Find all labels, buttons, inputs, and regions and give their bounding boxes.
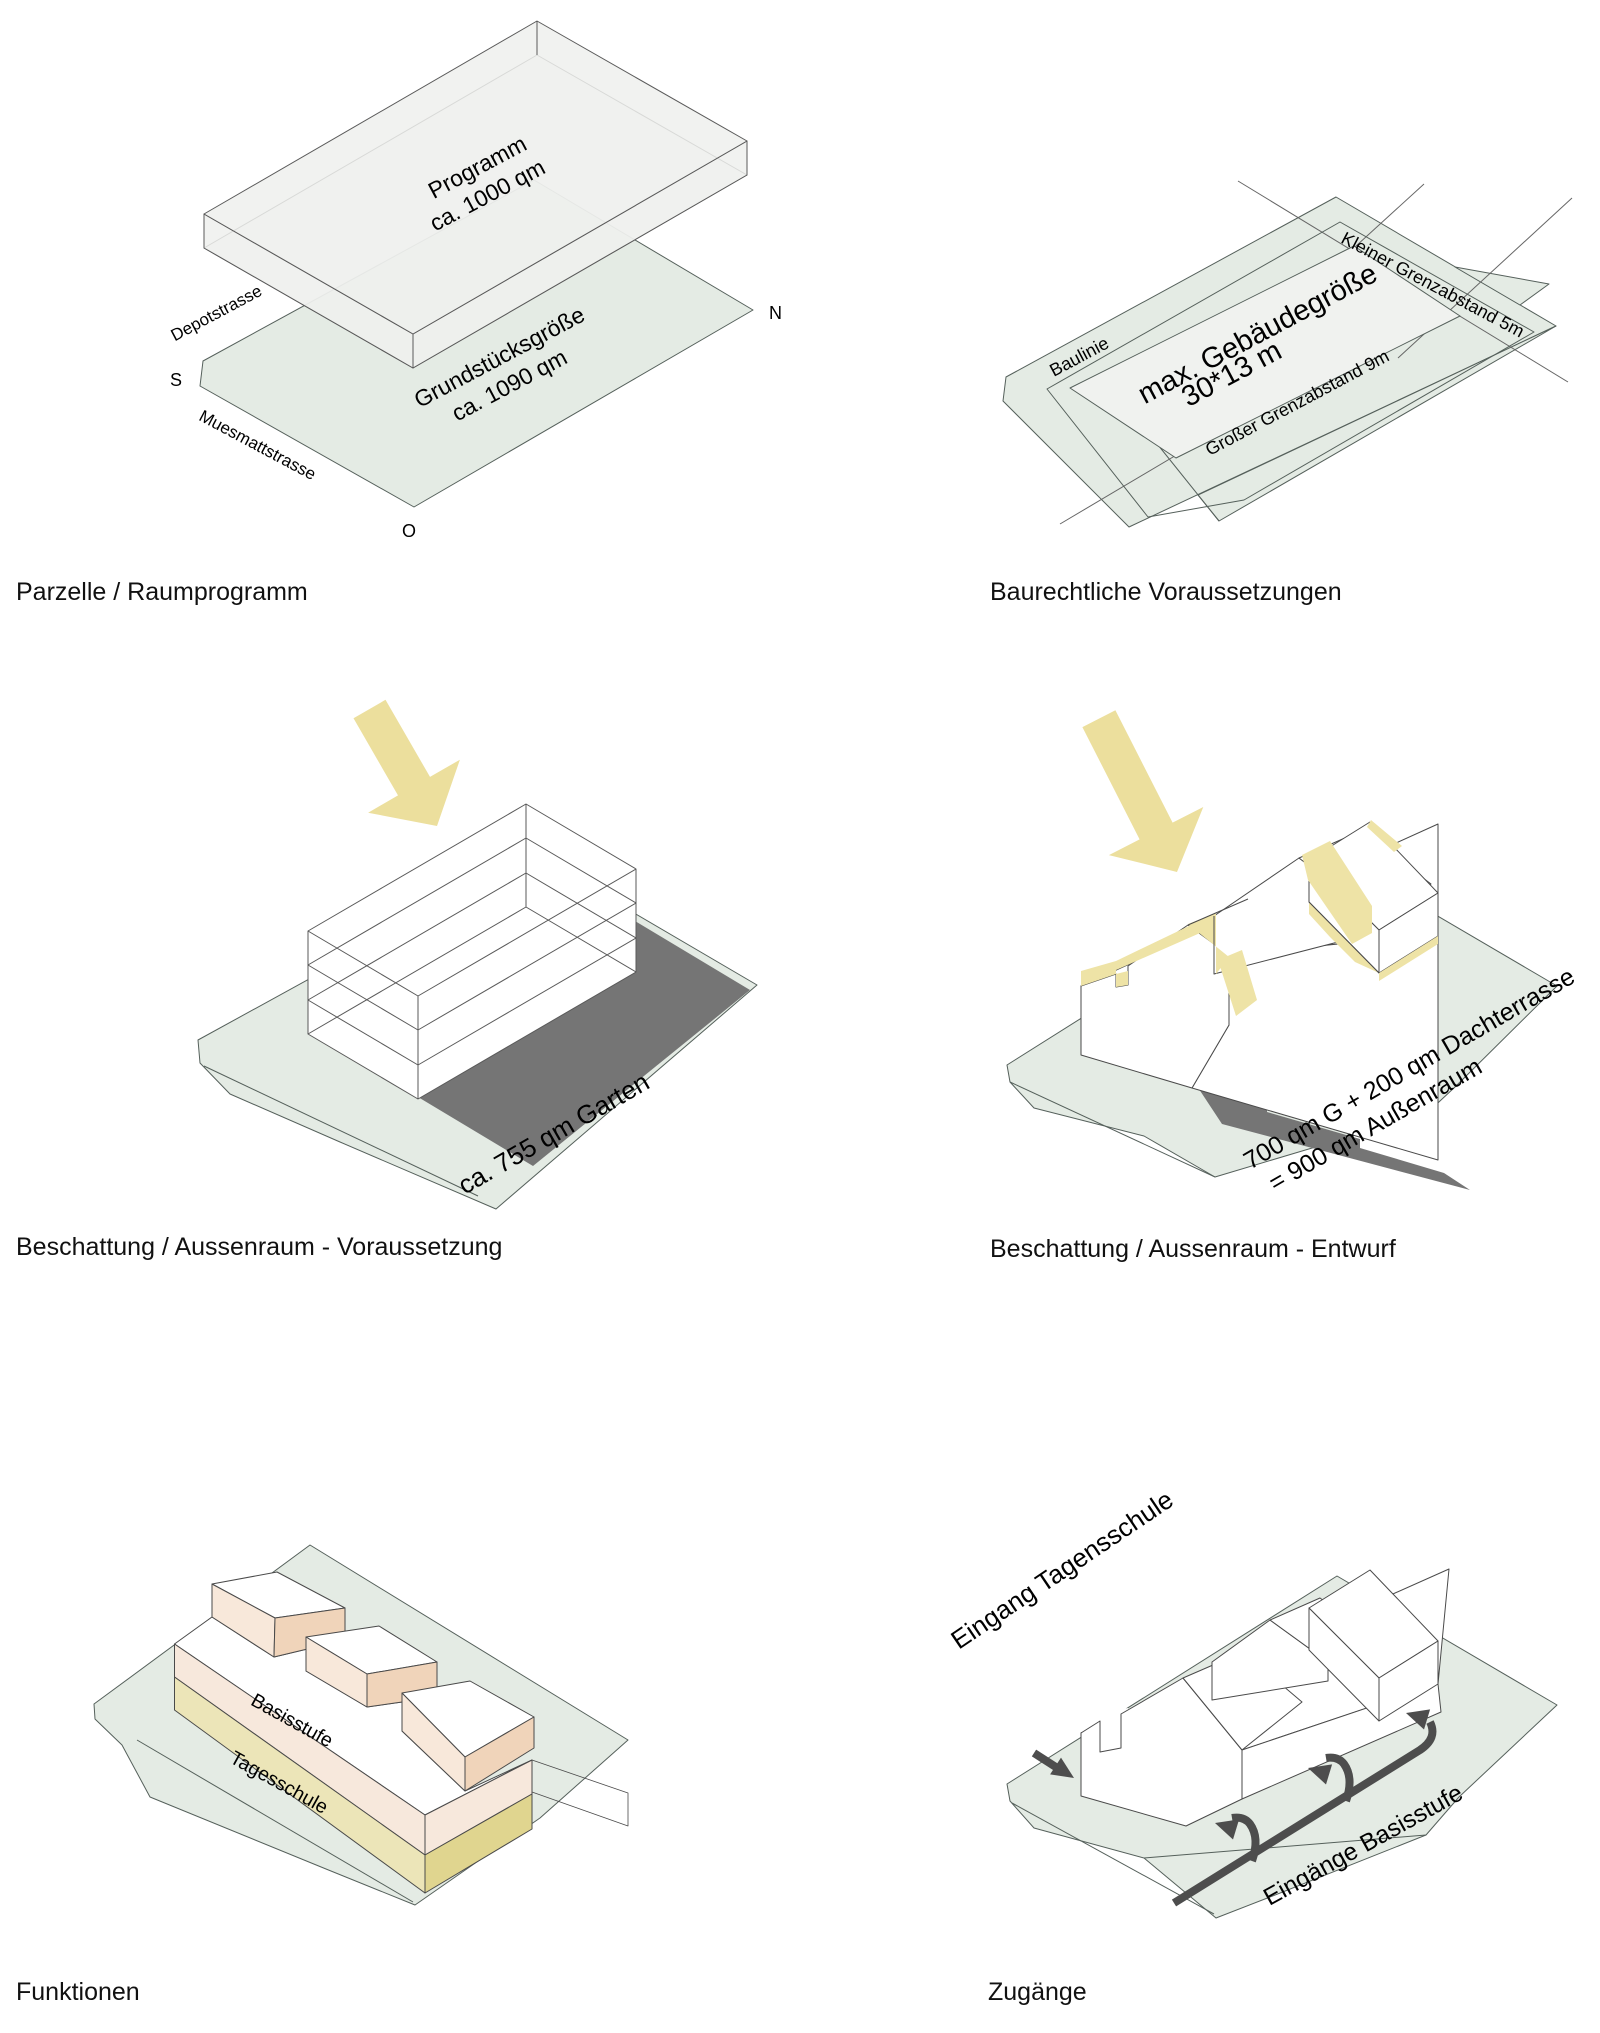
svg-text:Zugänge: Zugänge bbox=[988, 1978, 1087, 2006]
svg-text:O: O bbox=[402, 521, 416, 541]
svg-text:Beschattung / Aussenraum - Ent: Beschattung / Aussenraum - Entwurf bbox=[990, 1235, 1396, 1263]
svg-text:Baurechtliche Voraussetzungen: Baurechtliche Voraussetzungen bbox=[990, 578, 1342, 606]
svg-text:N: N bbox=[769, 303, 782, 323]
svg-text:S: S bbox=[170, 370, 182, 390]
svg-text:Funktionen: Funktionen bbox=[16, 1978, 140, 2006]
svg-text:Parzelle / Raumprogramm: Parzelle / Raumprogramm bbox=[16, 578, 308, 606]
svg-text:Beschattung / Aussenraum - Vor: Beschattung / Aussenraum - Voraussetzung bbox=[16, 1233, 502, 1261]
